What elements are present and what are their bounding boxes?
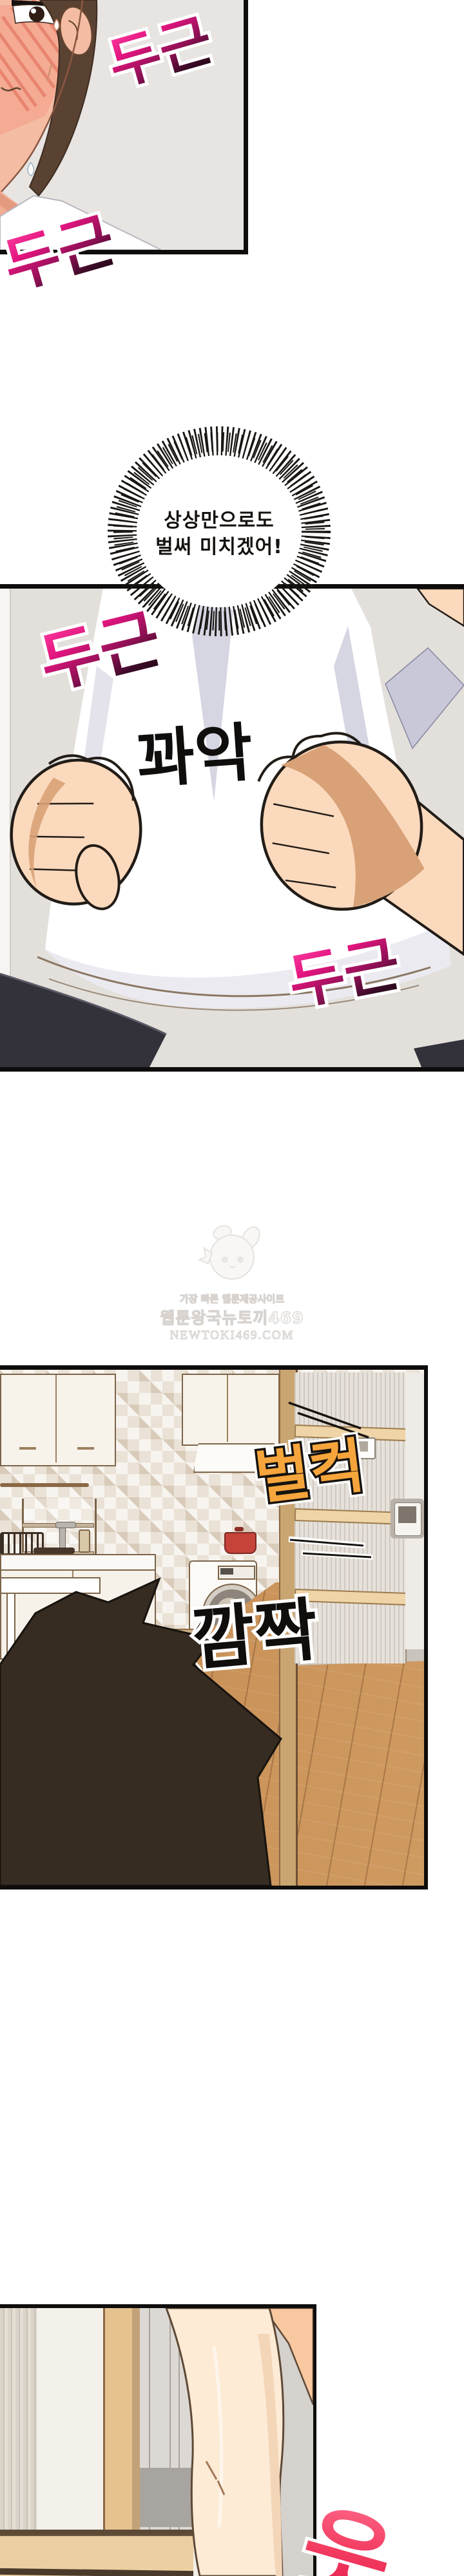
sfx-grip: 꽈악 <box>135 721 255 792</box>
watermark-tagline: 가장 빠른 웹툰제공사이트 <box>158 1292 306 1305</box>
watermark-sitename: 웹툰왕국뉴토끼469 <box>158 1305 306 1329</box>
comic-page: 가장 빠른 웹툰제공사이트 웹툰왕국뉴토끼469 NEWTOKI469.COM … <box>0 0 464 2576</box>
sweat-drop-neck <box>28 162 34 176</box>
leg-artwork <box>0 2308 313 2576</box>
speech-text: 상상만으로도 벌써 미치겠어! <box>106 507 332 560</box>
watermark-mascot <box>197 1224 267 1288</box>
speech-line-2: 벌써 미치겠어! <box>106 534 332 560</box>
panel-doorway-leg <box>0 2304 316 2576</box>
speech-line-1: 상상만으로도 <box>106 507 332 534</box>
watermark-url: NEWTOKI469.COM <box>158 1329 306 1343</box>
sfx-door-open: 벌컥 벌컥 벌컥 <box>252 1436 367 1508</box>
site-watermark: 가장 빠른 웹툰제공사이트 웹툰왕국뉴토끼469 NEWTOKI469.COM <box>158 1224 306 1349</box>
sfx-startle: 깜짝 깜짝 <box>189 1596 321 1675</box>
speed-lines <box>289 1539 372 1557</box>
